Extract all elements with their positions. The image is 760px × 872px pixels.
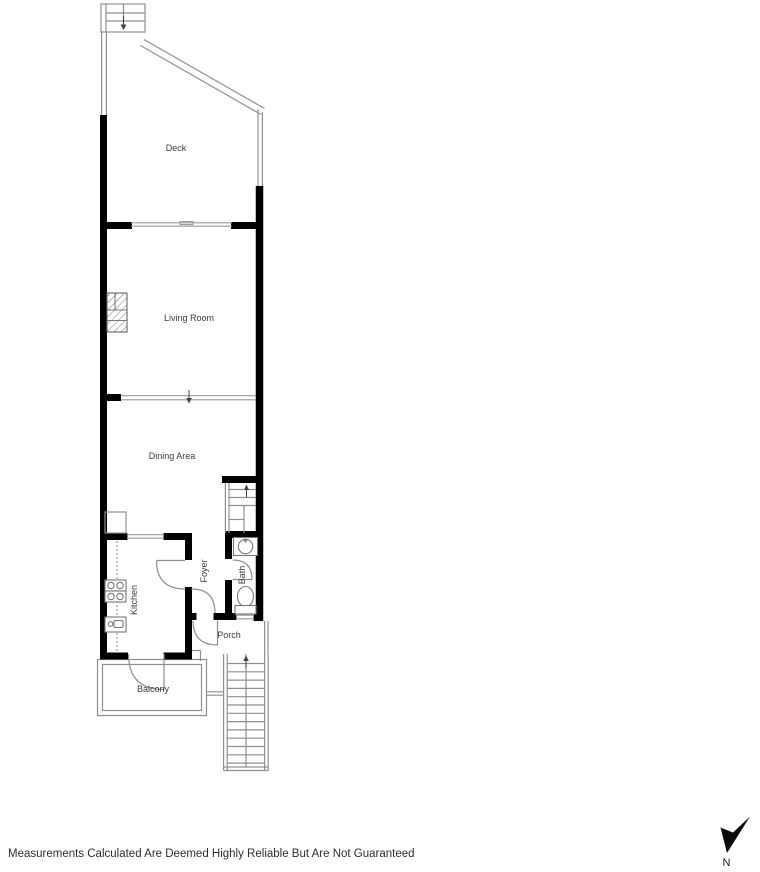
- room-label-deck: Deck: [166, 143, 187, 153]
- interior-stairs: [225, 483, 255, 533]
- deck-diagonal-rail: [144, 40, 265, 109]
- floorplan-page: Deck Living Room Dining Area Kitchen Foy…: [0, 0, 760, 872]
- compass: N: [721, 817, 751, 870]
- room-label-bath: Bath: [237, 566, 247, 585]
- opening-arrow-icon: [186, 398, 192, 404]
- room-label-balcony: Balcony: [137, 684, 170, 694]
- toilet-bowl: [238, 587, 254, 607]
- kitchen-door-swing: [157, 561, 186, 590]
- floorplan-drawing: Deck Living Room Dining Area Kitchen Foy…: [0, 0, 760, 872]
- room-label-living-room: Living Room: [164, 313, 214, 323]
- deck-stairs-down-arrow-icon: [121, 25, 127, 31]
- room-label-dining-area: Dining Area: [149, 451, 196, 461]
- deck-diagonal-rail: [141, 46, 262, 115]
- north-label: N: [723, 857, 731, 869]
- fireplace: [107, 293, 127, 332]
- exterior-stairs: [224, 654, 269, 771]
- interior-stair-up-arrow-icon: [244, 485, 249, 491]
- toilet-tank: [235, 606, 256, 615]
- room-label-kitchen: Kitchen: [129, 585, 139, 615]
- room-label-foyer: Foyer: [199, 559, 209, 582]
- kitchen-fixtures: [105, 541, 126, 652]
- dining-closet: [105, 512, 126, 533]
- deck-structure: [101, 4, 265, 187]
- stair-direction-arrow-icon: [243, 656, 249, 662]
- porch-structure: [192, 621, 269, 661]
- room-label-porch: Porch: [217, 630, 241, 640]
- north-arrow-icon: [721, 817, 751, 854]
- porch-door-swing: [193, 621, 218, 646]
- foyer-door-swing: [192, 589, 216, 613]
- disclaimer-text: Measurements Calculated Are Deemed Highl…: [8, 848, 415, 860]
